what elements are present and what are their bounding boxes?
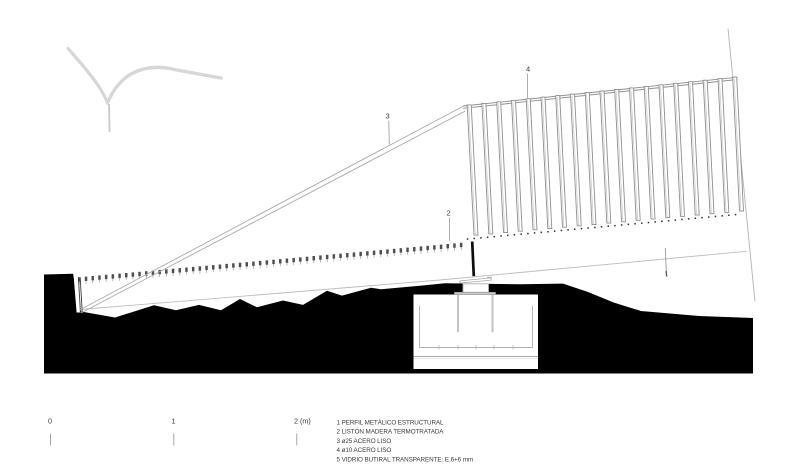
svg-text:0: 0 <box>48 417 52 426</box>
svg-text:5 VIDRIO BUTIRAL TRANSPARENTE:: 5 VIDRIO BUTIRAL TRANSPARENTE: E.6+6 mm <box>337 457 474 464</box>
svg-text:3: 3 <box>386 112 390 121</box>
svg-text:1: 1 <box>172 417 176 426</box>
svg-text:4: 4 <box>526 65 530 74</box>
svg-text:2: 2 <box>447 209 451 218</box>
svg-text:1 PERFIL METÁLICO ESTRUCTURAL: 1 PERFIL METÁLICO ESTRUCTURAL <box>337 417 445 426</box>
svg-text:2 (m): 2 (m) <box>294 417 311 426</box>
svg-text:3 ø25 ACERO LISO: 3 ø25 ACERO LISO <box>337 438 392 445</box>
svg-text:4 ø10 ACERO LISO: 4 ø10 ACERO LISO <box>337 447 392 454</box>
svg-text:2 LISTÓN MADERA TERMOTRATADA: 2 LISTÓN MADERA TERMOTRATADA <box>337 427 445 436</box>
